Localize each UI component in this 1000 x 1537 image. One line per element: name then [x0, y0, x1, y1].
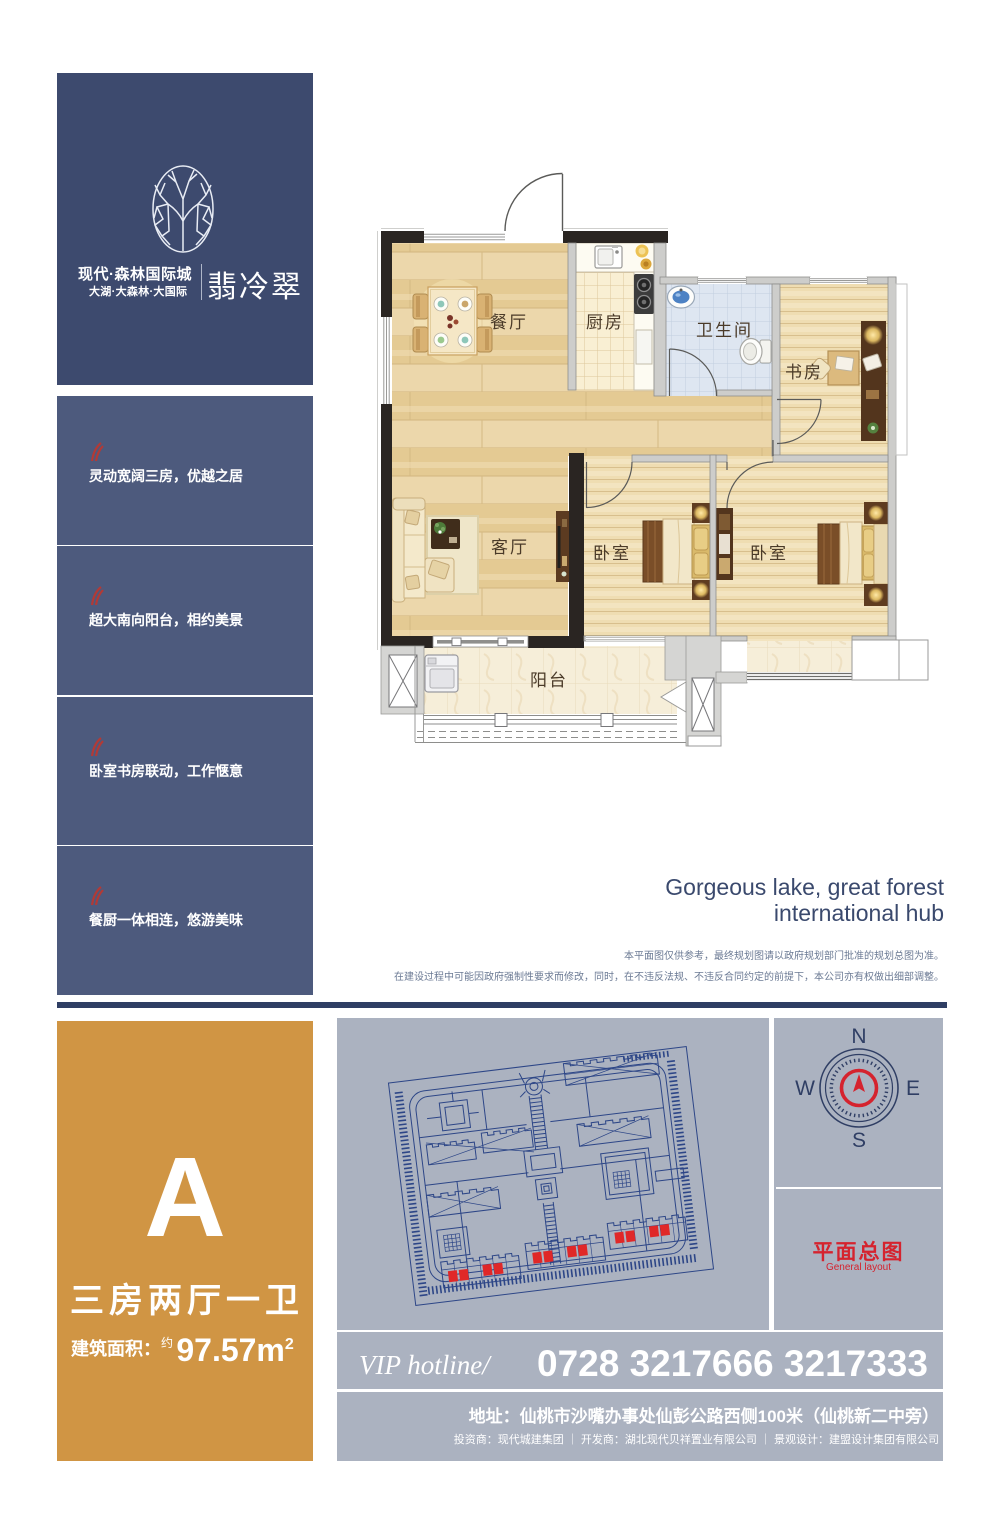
svg-text:E: E [906, 1077, 920, 1100]
svg-text:厨房: 厨房 [586, 313, 624, 332]
svg-text:卧室: 卧室 [593, 544, 631, 563]
svg-text:餐厅: 餐厅 [490, 313, 528, 332]
svg-text:N: N [851, 1025, 866, 1048]
svg-text:S: S [852, 1129, 866, 1152]
svg-text:卧室: 卧室 [750, 544, 788, 563]
svg-text:卫生间: 卫生间 [696, 321, 753, 340]
svg-text:客厅: 客厅 [491, 538, 529, 557]
svg-text:W: W [795, 1077, 815, 1100]
svg-text:书房: 书房 [785, 363, 823, 382]
svg-text:阳台: 阳台 [530, 671, 568, 690]
